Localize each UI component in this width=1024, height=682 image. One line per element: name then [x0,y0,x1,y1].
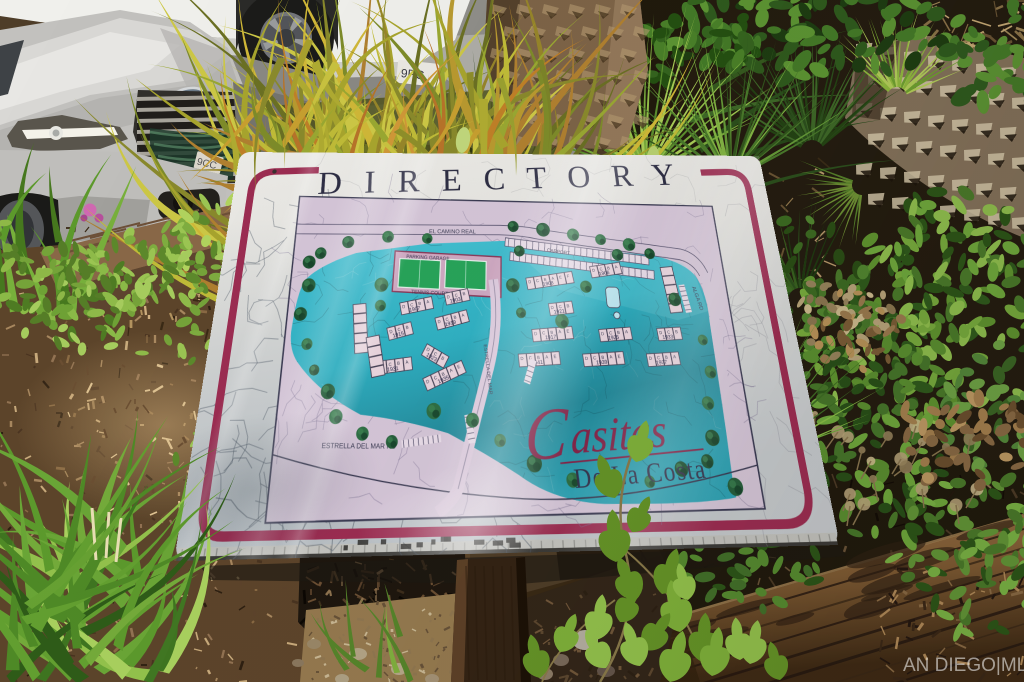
svg-text:AN DIEGO|MLS: AN DIEGO|MLS [903,655,1024,676]
